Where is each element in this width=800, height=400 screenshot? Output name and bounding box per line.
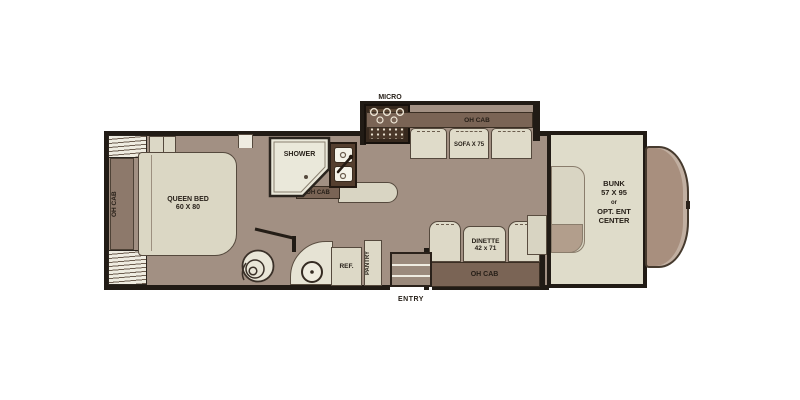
bunk-label: BUNK 57 X 95 or OPT. ENT CENTER (582, 179, 646, 225)
shower-drain-icon (304, 175, 308, 179)
burner-icon (384, 109, 391, 116)
galley-oh-cab-label: OH CAB (297, 190, 339, 197)
sofa-label: SOFA X 75 (450, 142, 488, 149)
pantry-label: PANTRY (365, 241, 381, 285)
faucet-base-icon (349, 155, 353, 159)
burner-icon (377, 117, 383, 123)
bath-door-line (255, 229, 293, 238)
bedroom-oh-cab-label: OH CAB (111, 159, 133, 249)
slideout-oh-cab-label: OH CAB (437, 117, 517, 124)
bath-sink-drain-icon (310, 270, 314, 274)
burner-icon (371, 109, 378, 116)
basin-drain-icon (341, 153, 346, 158)
queen-bed-label: QUEEN BED 60 X 80 (150, 196, 226, 211)
shower-stall (270, 138, 329, 196)
entry-label: ENTRY (385, 296, 437, 304)
shower-label: SHOWER (272, 151, 327, 159)
dinette-oh-cab-label: OH CAB (430, 271, 539, 279)
dinette-label: DINETTE 42 x 71 (460, 238, 511, 252)
ref-label: REF. (332, 263, 361, 270)
rv-floorplan: OH CAB QUEEN BED 60 X 80 SHOWER OH CAB M… (0, 0, 800, 400)
bedroom-overhead-cabinet: OH CAB (110, 158, 134, 250)
pantry: PANTRY (364, 240, 382, 286)
faucet-icon (338, 157, 351, 172)
basin-drain-icon (341, 174, 346, 179)
burner-icon (397, 109, 404, 116)
burner-icon (391, 117, 397, 123)
micro-label: MICRO (365, 94, 415, 102)
